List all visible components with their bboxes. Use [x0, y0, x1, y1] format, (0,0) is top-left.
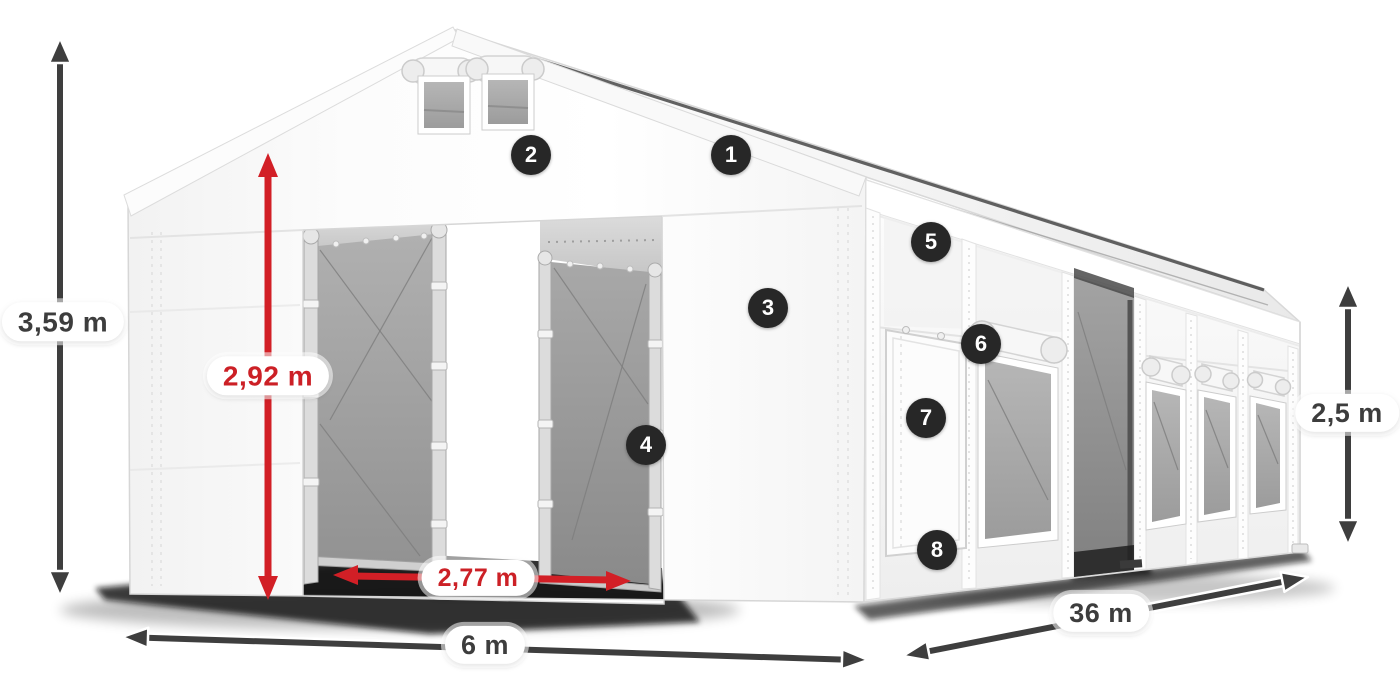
dim-label-total-height: 3,59 m: [2, 302, 124, 341]
dim-label-front-width: 6 m: [445, 626, 525, 664]
dim-label-door-height: 2,92 m: [207, 356, 329, 395]
dim-label-side-height: 2,5 m: [1295, 394, 1399, 432]
front-opening-interior: [303, 215, 664, 602]
marker-2[interactable]: 2: [511, 135, 551, 175]
side-doorway-open: [1074, 268, 1142, 577]
interior-mesh-wall-left: [318, 234, 434, 566]
tent-diagram-stage: 3,59 m 2,92 m 2,77 m 6 m 36 m 2,5 m 1 2 …: [0, 0, 1400, 700]
marker-8[interactable]: 8: [917, 530, 957, 570]
marker-5[interactable]: 5: [911, 222, 951, 262]
marker-1[interactable]: 1: [711, 135, 751, 175]
tent-illustration: [0, 0, 1400, 700]
side-door-panel: [886, 327, 966, 557]
marker-7[interactable]: 7: [906, 398, 946, 438]
marker-3[interactable]: 3: [748, 288, 788, 328]
marker-6[interactable]: 6: [961, 324, 1001, 364]
dim-label-door-width: 2,77 m: [422, 560, 535, 596]
dim-label-side-length: 36 m: [1053, 594, 1149, 632]
interior-mesh-wall-right: [551, 262, 650, 584]
marker-4[interactable]: 4: [626, 425, 666, 465]
